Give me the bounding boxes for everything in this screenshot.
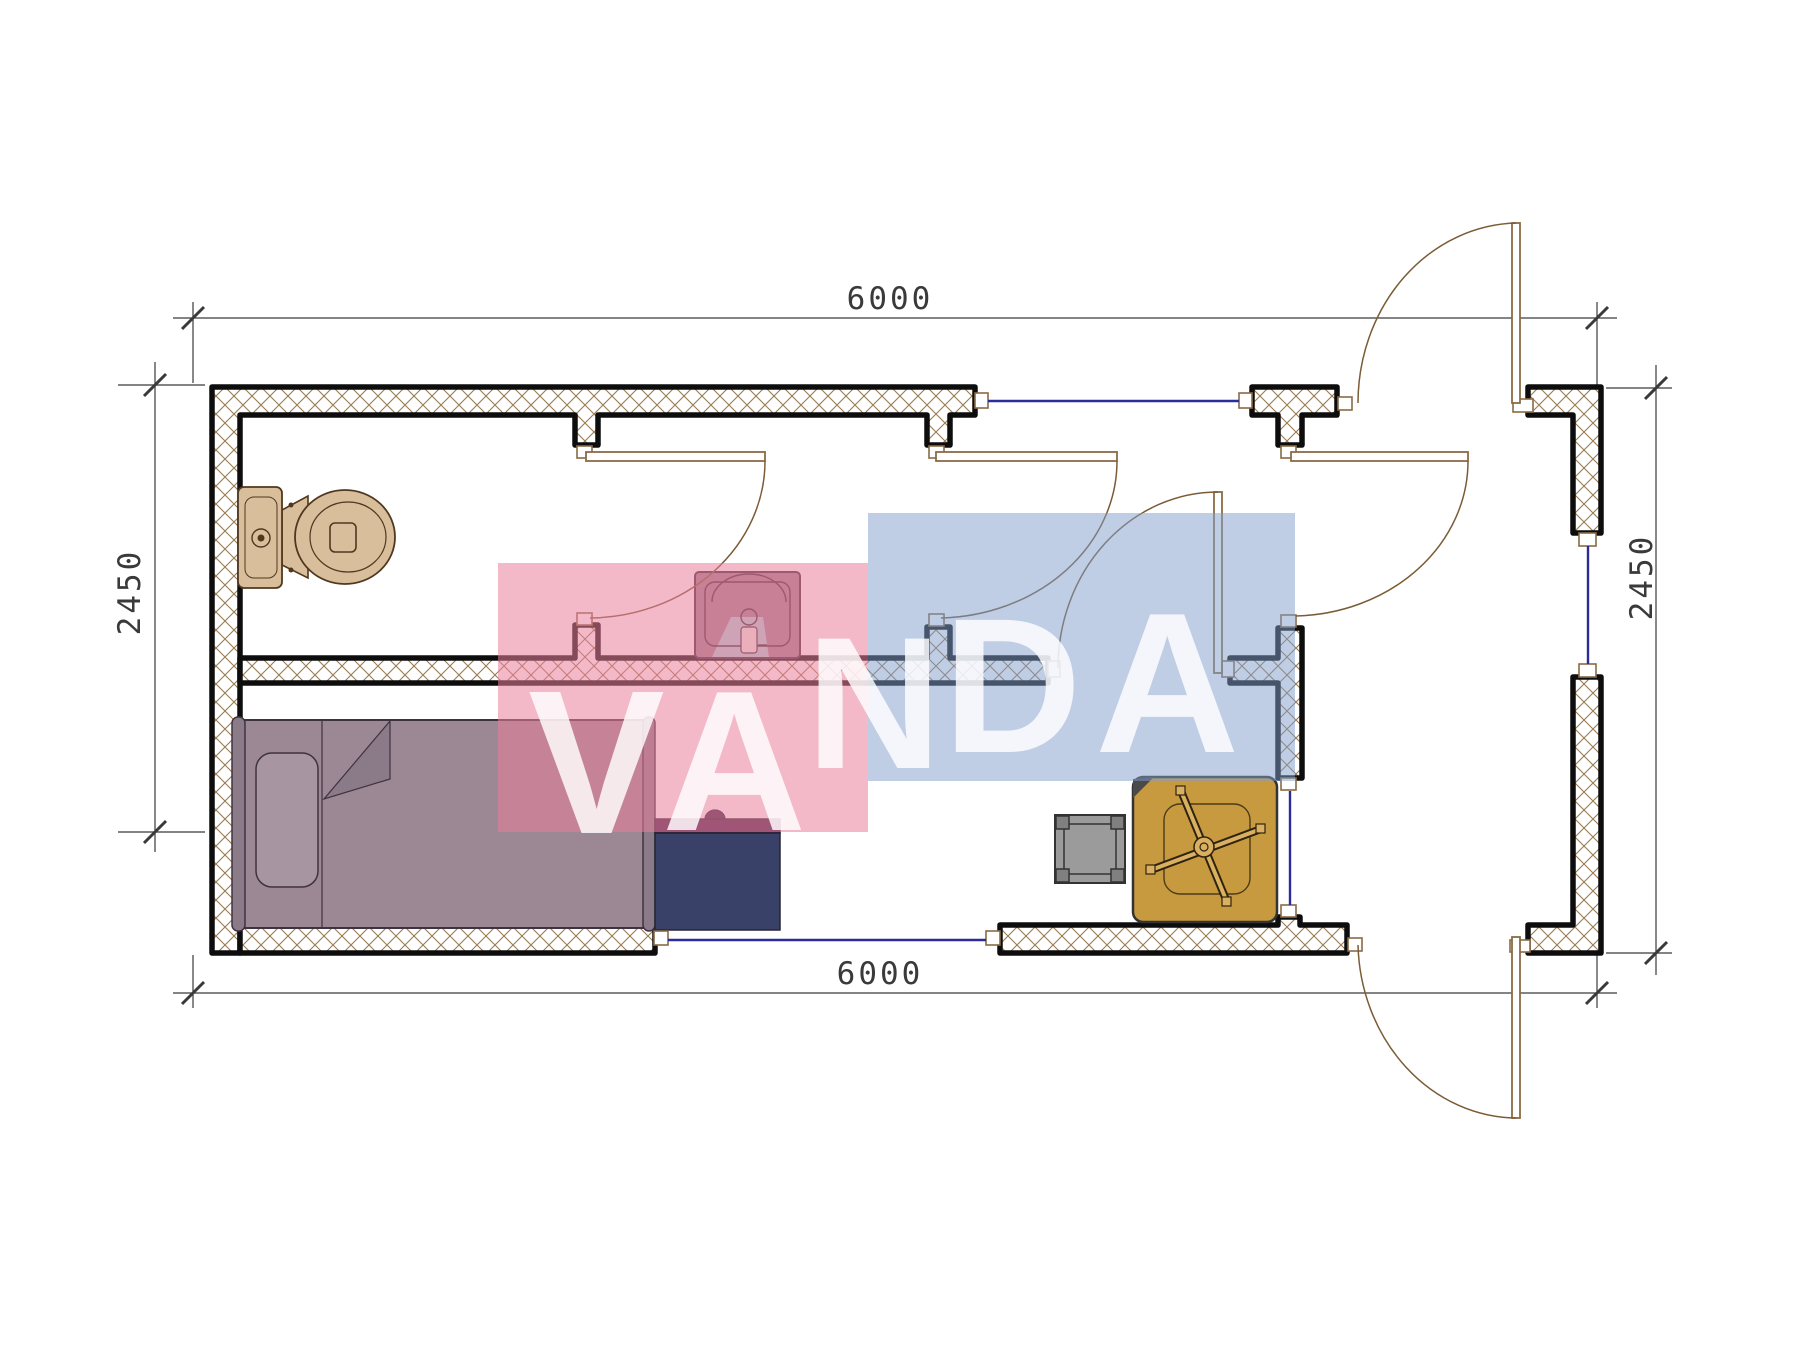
window-frame-marker <box>975 393 988 408</box>
door-swing-arc <box>1296 461 1468 616</box>
dimension-left: 2450 <box>112 362 205 852</box>
watermark-letter: V <box>528 648 665 877</box>
dimension-right-label: 2450 <box>1624 534 1660 621</box>
stool-leg <box>1056 869 1069 882</box>
door-leaf <box>1512 937 1520 1118</box>
dimension-bottom: 6000 <box>173 955 1617 1008</box>
door-leaf <box>936 452 1117 461</box>
dimension-bottom-label: 6000 <box>837 956 924 992</box>
table <box>1133 777 1277 922</box>
wall-bottom-left-segment <box>240 925 655 953</box>
window-frame-marker <box>1239 393 1252 408</box>
floorplan-page: 6000 6000 2450 2450 <box>0 0 1800 1350</box>
window-frame-marker <box>654 931 668 945</box>
watermark-letter: A <box>662 650 806 873</box>
window-frame-marker <box>1579 533 1596 546</box>
window-frame-marker <box>1281 905 1296 917</box>
door-frame-marker <box>1348 938 1362 951</box>
wall-top-t-piece <box>1252 387 1337 445</box>
dimension-right: 2450 <box>1606 365 1672 975</box>
dimension-top: 6000 <box>173 281 1617 385</box>
wall-corner-bottom-right <box>1528 677 1601 953</box>
bed-headboard <box>232 717 245 931</box>
stool-leg <box>1111 869 1124 882</box>
dimension-left-label: 2450 <box>112 549 148 636</box>
wall-corner-top-right <box>1528 387 1601 533</box>
stool <box>1055 815 1125 883</box>
door-entrance-top <box>1358 223 1520 403</box>
door-frame-marker <box>1338 397 1352 410</box>
door-middle-room-right <box>1291 452 1468 616</box>
door-swing-arc <box>1358 223 1516 403</box>
door-leaf <box>586 452 765 461</box>
watermark-letter: N <box>806 598 942 808</box>
door-exit-bottom <box>1358 937 1520 1118</box>
stool-leg <box>1056 816 1069 829</box>
window-frame-marker <box>1579 664 1596 677</box>
stool-leg <box>1111 816 1124 829</box>
watermark-letter: A <box>1095 572 1239 795</box>
door-leaf <box>1512 223 1520 403</box>
watermark-letter: D <box>943 578 1082 793</box>
bed-pillow <box>256 753 318 887</box>
door-leaf <box>1291 452 1468 461</box>
dimension-top-label: 6000 <box>847 281 934 317</box>
toilet <box>238 487 395 588</box>
window-frame-marker <box>986 931 1000 945</box>
door-swing-arc <box>1358 945 1516 1118</box>
floor-plan-canvas: 6000 6000 2450 2450 <box>0 0 1800 1350</box>
